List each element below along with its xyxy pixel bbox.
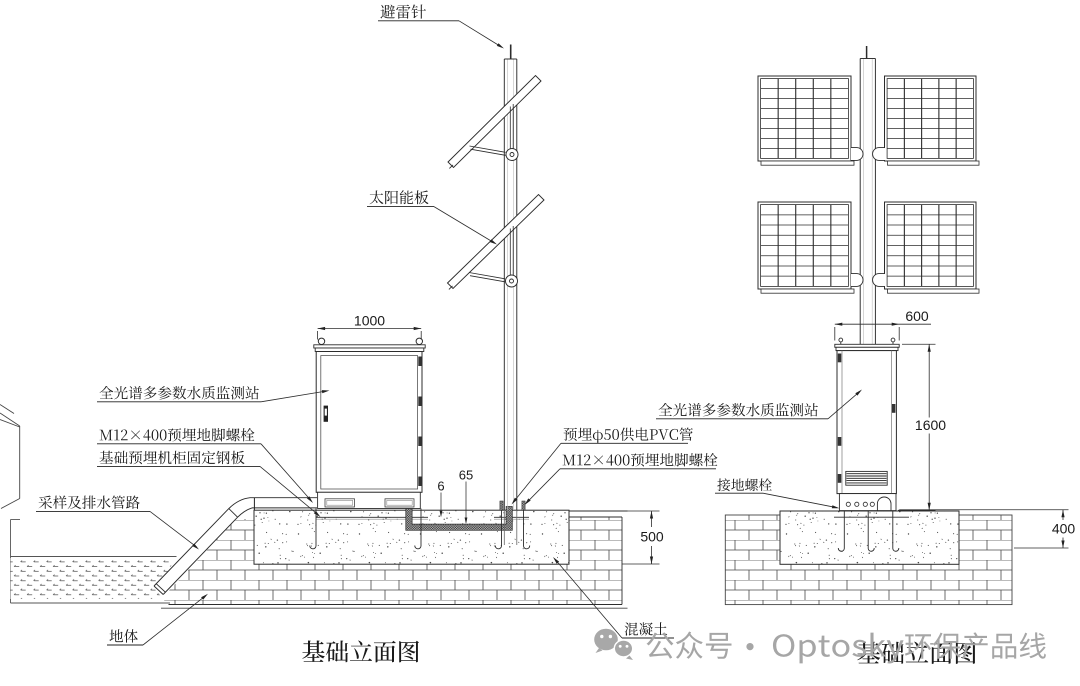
svg-text:1000: 1000: [354, 313, 385, 329]
svg-text:1600: 1600: [915, 417, 946, 433]
svg-text:65: 65: [459, 468, 473, 483]
svg-text:6: 6: [437, 479, 444, 494]
svg-text:500: 500: [640, 529, 664, 545]
svg-text:600: 600: [905, 308, 929, 324]
svg-text:400: 400: [1052, 520, 1076, 536]
